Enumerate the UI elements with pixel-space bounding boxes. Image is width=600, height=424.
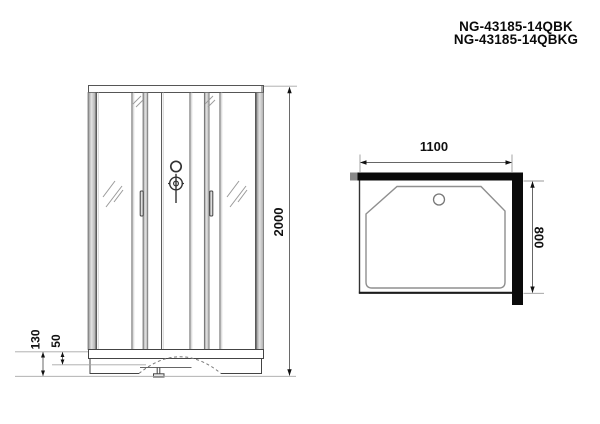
front-extension-lines	[15, 86, 297, 376]
arrow-right-icon	[506, 160, 513, 164]
arrow-up-icon	[287, 87, 291, 94]
arrow-down-icon	[530, 287, 534, 294]
door-handle-icon-right	[210, 191, 213, 216]
right-door-stile	[204, 93, 209, 350]
top-view: 1100 800	[350, 139, 547, 305]
apron-cutout-arc	[139, 357, 221, 374]
arrow-up-icon	[41, 352, 45, 358]
arrow-left-icon	[360, 160, 367, 164]
drawing-canvas: 2000 130 50	[0, 0, 600, 424]
dim-label-tray-upper: 50	[49, 334, 63, 348]
adjustable-foot	[154, 368, 165, 378]
glass-hatch-right	[227, 181, 247, 207]
tray-apron	[90, 359, 262, 374]
glass-hatch-left	[103, 181, 123, 207]
glass-hatch-top-left	[133, 96, 143, 107]
door-handle-icon-left	[140, 191, 143, 216]
left-frame-profile	[88, 93, 96, 350]
arrow-up-icon	[530, 181, 534, 188]
dim-label-tray-total: 130	[29, 329, 43, 349]
arrow-up-icon	[61, 352, 65, 357]
dim-label-height: 2000	[271, 208, 286, 237]
drain-icon	[434, 194, 445, 205]
dim-tray-total-height: 130	[29, 329, 46, 376]
dim-width: 1100	[360, 139, 512, 172]
front-view: 2000 130 50	[15, 86, 297, 378]
arrow-down-icon	[287, 369, 291, 376]
dim-overall-height: 2000	[271, 87, 292, 376]
panel-lines	[97, 93, 256, 350]
dim-label-depth: 800	[532, 227, 547, 249]
back-wall-end-cap	[350, 173, 358, 181]
tray	[89, 350, 264, 378]
back-wall-profile	[350, 173, 513, 181]
shower-mixer-icon	[168, 161, 184, 203]
side-wall-profile	[512, 173, 523, 306]
panel-highlight-lines	[98, 93, 222, 350]
aluminium-profiles	[88, 93, 264, 350]
left-door-stile	[143, 93, 148, 350]
technical-drawing-page: NG-43185-14QBK NG-43185-14QBKG	[0, 0, 600, 424]
arrow-down-icon	[61, 360, 65, 365]
right-frame-profile	[256, 93, 263, 350]
arrow-down-icon	[41, 371, 45, 377]
top-frame-bar	[89, 86, 264, 93]
dim-depth: 800	[524, 181, 547, 293]
dim-tray-upper-height: 50	[49, 334, 64, 364]
dim-label-width: 1100	[420, 139, 448, 154]
